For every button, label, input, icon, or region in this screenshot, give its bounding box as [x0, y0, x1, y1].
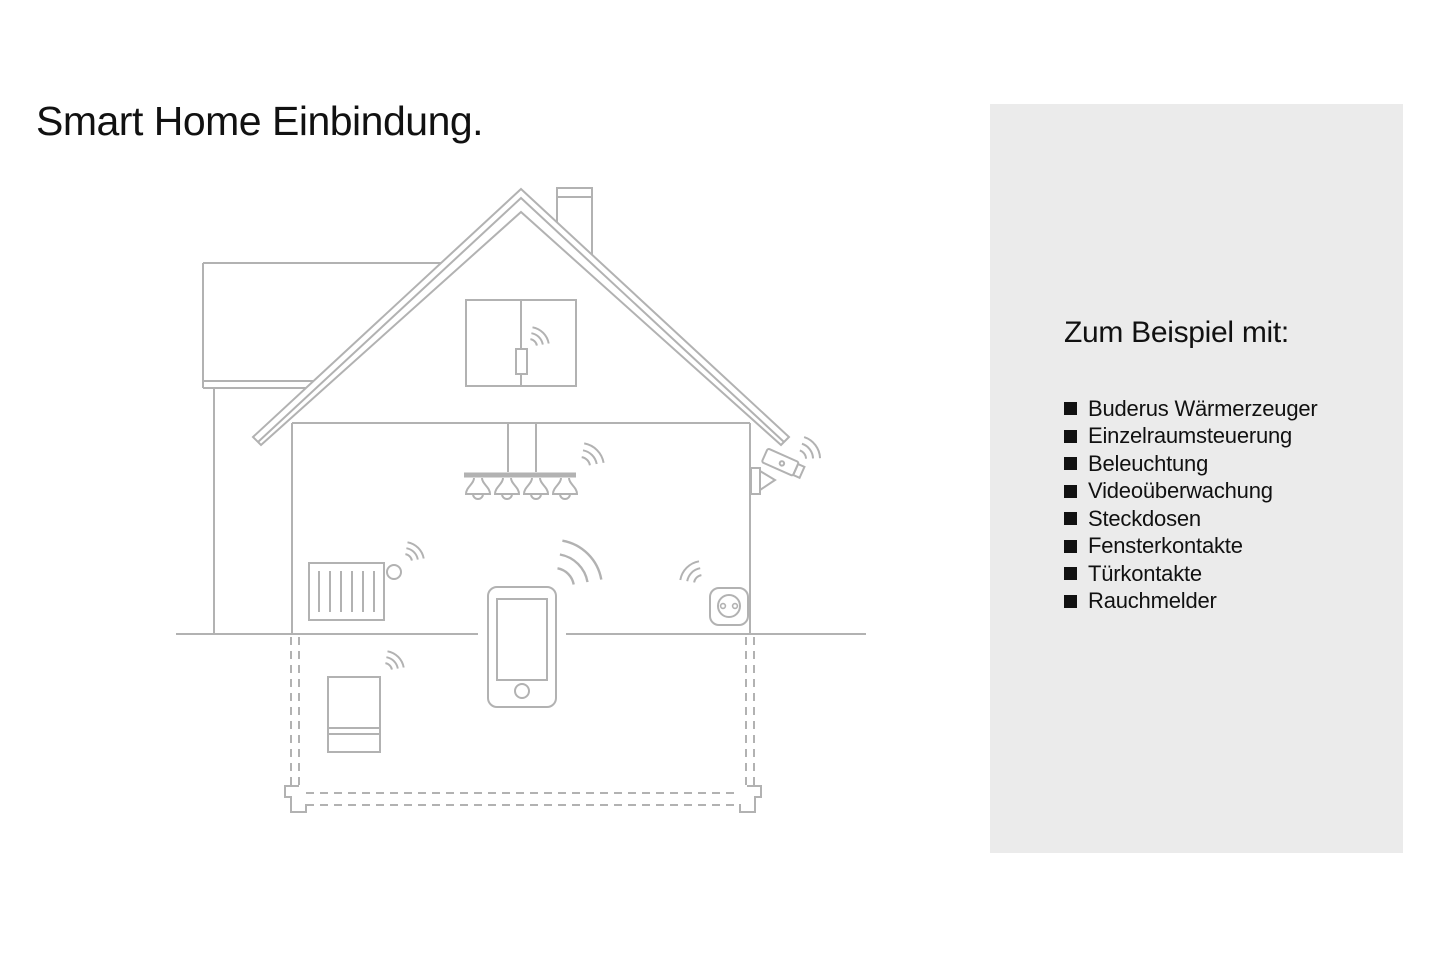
basement-foundation-icon [285, 637, 761, 812]
wifi-signal-icon [530, 327, 548, 345]
wifi-signal-icon [680, 561, 701, 582]
bullet-square-icon [1064, 540, 1077, 553]
bullet-square-icon [1064, 430, 1077, 443]
bullet-square-icon [1064, 512, 1077, 525]
list-item: Steckdosen [1064, 505, 1318, 533]
list-item-label: Steckdosen [1088, 506, 1201, 532]
list-item: Buderus Wärmerzeuger [1064, 395, 1318, 423]
bullet-square-icon [1064, 457, 1077, 470]
list-item: Rauchmelder [1064, 588, 1318, 616]
bullet-square-icon [1064, 402, 1077, 415]
info-panel: Zum Beispiel mit: Buderus Wärmerzeuger E… [990, 104, 1403, 853]
radiator-thermostat-icon [309, 542, 424, 620]
list-item-label: Einzelraumsteuerung [1088, 423, 1292, 449]
smartphone-icon [488, 541, 601, 707]
bullet-square-icon [1064, 485, 1077, 498]
house-body [292, 423, 750, 634]
slide: Smart Home Einbindung. [0, 0, 1440, 960]
bullet-square-icon [1064, 567, 1077, 580]
list-item: Beleuchtung [1064, 450, 1318, 478]
list-item-label: Fensterkontakte [1088, 533, 1243, 559]
list-item-label: Türkontakte [1088, 561, 1202, 587]
panel-heading: Zum Beispiel mit: [1064, 316, 1289, 350]
power-socket-icon [680, 561, 748, 625]
list-item: Fensterkontakte [1064, 533, 1318, 561]
wifi-signal-icon [558, 541, 602, 585]
list-item-label: Buderus Wärmerzeuger [1088, 396, 1318, 422]
list-item-label: Beleuchtung [1088, 451, 1208, 477]
ceiling-lights-icon [464, 424, 604, 499]
wifi-signal-icon [799, 437, 823, 461]
list-item: Einzelraumsteuerung [1064, 423, 1318, 451]
garage-extension [203, 263, 450, 634]
list-item-label: Videoüberwachung [1088, 478, 1273, 504]
boiler-icon [328, 651, 404, 752]
list-item: Videoüberwachung [1064, 478, 1318, 506]
attic-window-contact-icon [466, 300, 576, 386]
security-camera-icon [751, 437, 823, 494]
list-item: Türkontakte [1064, 560, 1318, 588]
wifi-signal-icon [385, 651, 403, 669]
wifi-signal-icon [405, 542, 423, 560]
wifi-signal-icon [582, 443, 604, 465]
bullet-square-icon [1064, 595, 1077, 608]
example-list: Buderus Wärmerzeuger Einzelraumsteuerung… [1064, 395, 1318, 615]
list-item-label: Rauchmelder [1088, 588, 1217, 614]
